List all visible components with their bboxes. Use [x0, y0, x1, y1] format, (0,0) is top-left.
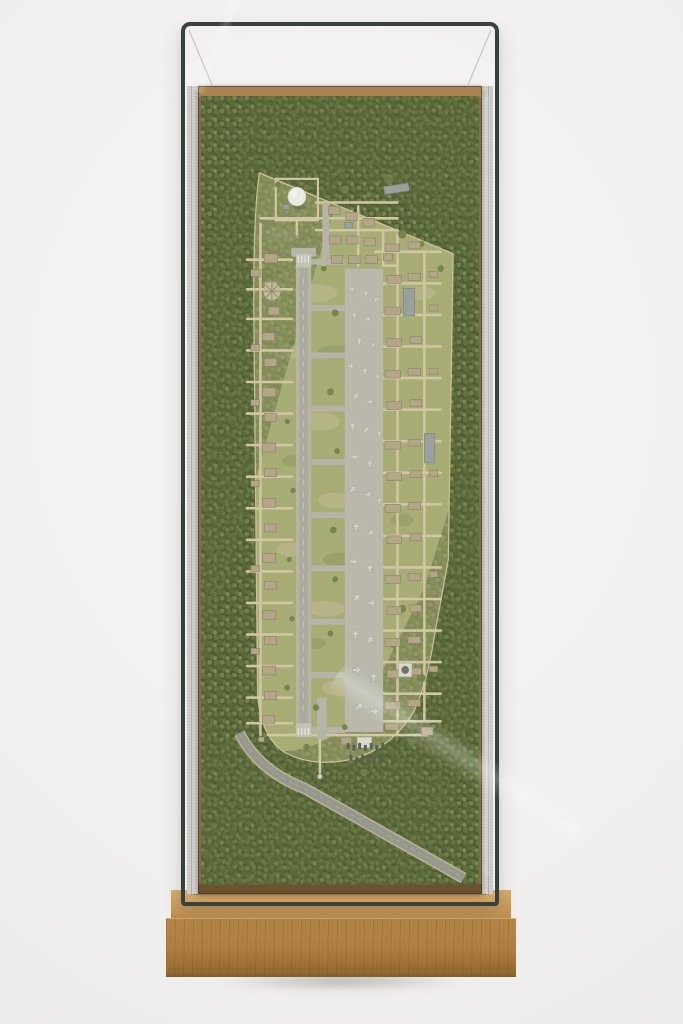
gallery-wall — [0, 0, 683, 1024]
oak-plinth — [166, 918, 516, 977]
diorama-board — [198, 86, 482, 894]
model-texture — [201, 96, 479, 885]
diorama-model — [201, 96, 479, 885]
glass-reflection-top-left — [193, 0, 260, 95]
glass-display-case — [181, 22, 499, 906]
